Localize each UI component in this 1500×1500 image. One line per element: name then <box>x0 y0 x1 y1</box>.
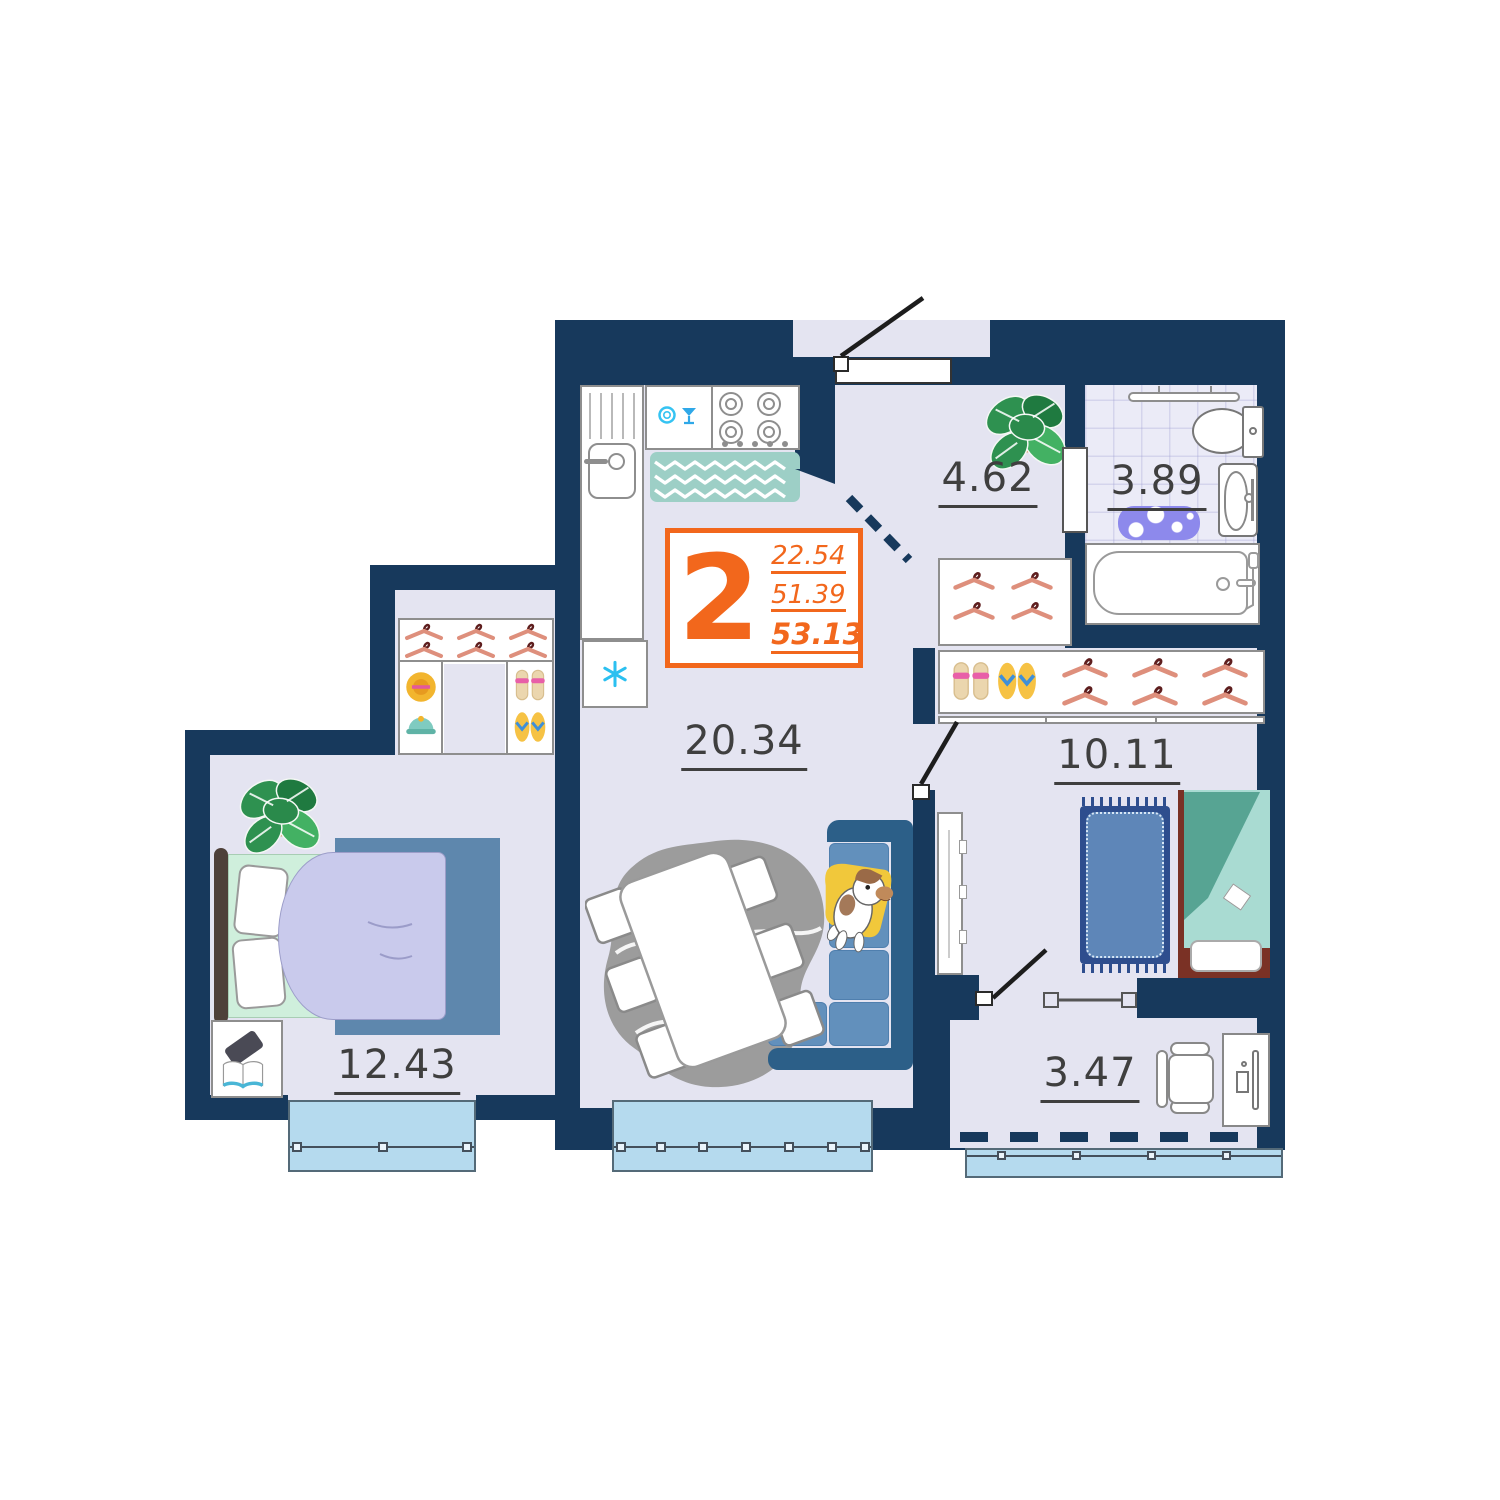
stove-knob <box>722 441 728 447</box>
shelf-bracket <box>1210 386 1212 392</box>
window-mullion <box>616 1142 626 1152</box>
wall-niche-left <box>370 565 395 755</box>
window-balcony <box>965 1148 1283 1178</box>
window-mullion <box>997 1151 1006 1160</box>
bathtub-drain <box>1216 577 1230 591</box>
window-mullion <box>784 1142 794 1152</box>
slippers-icon <box>513 668 547 702</box>
wardrobe-divider <box>441 662 443 753</box>
stove-knob <box>782 441 788 447</box>
monitor <box>1252 1050 1259 1110</box>
living-door-hinge <box>912 784 930 800</box>
bed-left-headboard <box>214 848 228 1024</box>
area-label-bedroom-right: 10.11 <box>1054 732 1180 785</box>
area-label-balcony: 3.47 <box>1040 1050 1139 1103</box>
wall-under-bed <box>1137 978 1257 1018</box>
kitchen-rug <box>650 452 800 502</box>
wardrobe-shelf-line <box>398 660 554 662</box>
flipflops-icon <box>996 660 1038 702</box>
window-bedroom-left <box>288 1100 476 1172</box>
sink-faucet-bar <box>1251 479 1254 521</box>
window-mullion <box>860 1142 870 1152</box>
bed-left-duvet <box>278 852 446 1020</box>
dresser-handle <box>959 930 967 944</box>
book-icon <box>220 1060 266 1090</box>
bathroom-shelf <box>1128 392 1240 402</box>
wardrobe-middle-bay <box>444 664 505 753</box>
hanger-icon <box>1198 684 1252 708</box>
hanger-icon <box>402 640 446 660</box>
toilet-button <box>1249 427 1257 435</box>
window-mullion <box>656 1142 666 1152</box>
hanger-icon <box>1128 684 1182 708</box>
bedroom-door-hinge <box>975 991 993 1006</box>
bedroom-right-rug-tassels-bottom <box>1082 964 1168 973</box>
entrance-door-leaf <box>835 358 952 384</box>
bathroom-door <box>1062 447 1088 533</box>
dishwasher-icon <box>658 404 702 426</box>
window-mullion-line <box>967 1155 1281 1157</box>
badge-values: 22.54 51.39 53.13 <box>771 542 863 654</box>
flipflops-icon <box>513 710 547 744</box>
window-mullion <box>827 1142 837 1152</box>
room-count: 2 <box>678 544 755 653</box>
wall-bedroom-left-side <box>185 730 210 1120</box>
entrance-door-hinge <box>833 356 849 372</box>
shelf-tick <box>1155 716 1157 724</box>
window-mullion <box>1147 1151 1156 1160</box>
wall-niche-top <box>370 565 580 590</box>
bedroom-right-rug-field <box>1086 812 1164 958</box>
area-label-hallway: 4.62 <box>938 455 1037 508</box>
hanger-icon <box>402 622 446 642</box>
bathroom-sink <box>1218 463 1258 537</box>
wall-bedroom-left-top <box>185 730 395 755</box>
hanger-icon <box>506 640 550 660</box>
hanger-icon <box>950 600 998 622</box>
shelf-bracket <box>1158 386 1160 392</box>
fridge-snowflake-icon <box>601 660 629 688</box>
window-mullion <box>1072 1151 1081 1160</box>
window-mullion <box>1222 1151 1231 1160</box>
wardrobe-divider <box>506 662 508 753</box>
window-mullion <box>462 1142 472 1152</box>
window-mullion <box>741 1142 751 1152</box>
hanger-icon <box>1008 570 1056 592</box>
wall-bottom-left-b <box>476 1095 580 1120</box>
stove-knob <box>767 441 773 447</box>
shower-head <box>1248 552 1259 569</box>
hat-icon <box>404 670 438 704</box>
badge-value-total: 53.13 <box>771 619 863 654</box>
window-mullion <box>698 1142 708 1152</box>
window-mullion <box>378 1142 388 1152</box>
stove-knob <box>737 441 743 447</box>
sink-faucet-handle <box>584 459 608 464</box>
dining-set <box>585 818 847 1102</box>
wall-corner-bedroom <box>935 975 979 1020</box>
stove-burner <box>719 392 743 416</box>
bed-right-pillow <box>1190 940 1262 972</box>
kitchen-counter-column <box>580 385 644 640</box>
area-label-bathroom: 3.89 <box>1107 458 1206 511</box>
door-opening-living <box>913 724 935 790</box>
info-badge: 2 22.54 51.39 53.13 <box>665 528 863 668</box>
dresser-line <box>948 830 950 958</box>
slippers-icon <box>950 660 992 702</box>
hanger-icon <box>950 570 998 592</box>
badge-value-top: 22.54 <box>771 542 845 574</box>
floor-plan-page: { "badge": { "room_count": "2", "value_t… <box>0 0 1500 1500</box>
window-living <box>612 1100 873 1172</box>
hanger-icon <box>1198 656 1252 680</box>
hanger-icon <box>1058 656 1112 680</box>
bathtub-faucet <box>1236 579 1256 587</box>
sink-drainboard <box>589 393 637 439</box>
sink-faucet <box>608 453 625 470</box>
mouse <box>1241 1061 1247 1067</box>
wall-stub-entry <box>795 385 835 469</box>
corridor-wardrobe-shelf <box>938 716 1265 724</box>
office-chair-back <box>1156 1050 1168 1108</box>
shelf-tick <box>1045 716 1047 724</box>
dresser-handle <box>959 885 967 899</box>
hanger-icon <box>454 622 498 642</box>
cap-icon <box>404 712 438 746</box>
bed-right-blanket <box>1184 790 1270 948</box>
window-mullion <box>292 1142 302 1152</box>
office-chair-seat <box>1168 1054 1214 1104</box>
stove-burner <box>757 392 781 416</box>
hanger-icon <box>1008 600 1056 622</box>
stove-knob <box>752 441 758 447</box>
area-label-bedroom-left: 12.43 <box>334 1042 460 1095</box>
area-label-kitchen-living: 20.34 <box>681 718 807 771</box>
wall-bottom-left-a <box>185 1095 288 1120</box>
hanger-icon <box>506 622 550 642</box>
bath-mat <box>1118 506 1200 540</box>
plant-icon <box>232 766 330 864</box>
counter-divider <box>711 387 713 448</box>
badge-value-middle: 51.39 <box>771 581 845 613</box>
bedroom-right-rug-tassels-top <box>1082 797 1168 806</box>
keyboard <box>1236 1071 1249 1093</box>
kitchen-sink <box>588 443 636 499</box>
hanger-icon <box>1128 656 1182 680</box>
entrance-recess <box>793 320 990 357</box>
dresser-handle <box>959 840 967 854</box>
hanger-icon <box>1058 684 1112 708</box>
hanger-icon <box>454 640 498 660</box>
